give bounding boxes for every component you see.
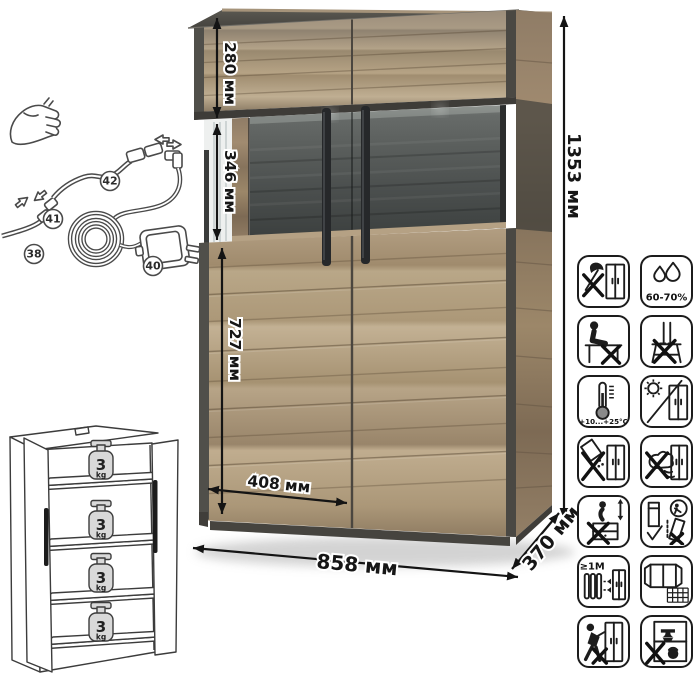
- cable-connector: [126, 143, 163, 163]
- care-icon-keep-1m-from-heat: ≥1M: [577, 555, 630, 608]
- cable-power-diagram: 42 41 38 40: [2, 98, 202, 276]
- elbow-plug: [165, 151, 182, 168]
- care-icon-no-overloading: [640, 615, 693, 668]
- care-icon-transport-upright: [640, 495, 693, 548]
- callout-40: 40: [144, 257, 163, 276]
- callout-41-number: 41: [45, 213, 60, 226]
- care-icon-temperature-range: +10...+25°C: [577, 375, 630, 428]
- callout-38-number: 38: [26, 248, 41, 261]
- callout-41: 41: [44, 210, 63, 229]
- weight-unit: kg: [96, 471, 106, 480]
- care-icon-no-sitting: [577, 315, 630, 368]
- dim-label-lower-section: 727 мм: [226, 318, 244, 381]
- shelf-weight-2: 3 kg: [89, 501, 113, 540]
- dim-label-top-section: 280 мм: [221, 42, 239, 105]
- callout-38: 38: [25, 245, 44, 264]
- care-icon-humidity-range: 60-70%: [640, 255, 693, 308]
- shelf-capacity-diagram: 3 kg 3 kg 3 kg 3 kg: [10, 426, 178, 672]
- care-icon-no-wet-cleaning: [640, 435, 693, 488]
- care-icon-ventilate-room: [640, 555, 693, 608]
- care-icon-no-pushing: [577, 615, 630, 668]
- product-spec-sheet: 42 41 38 40: [0, 0, 700, 678]
- dim-label-glass-section: 346 мм: [221, 150, 239, 213]
- weight-unit: kg: [96, 633, 106, 642]
- hand-icon: [10, 98, 60, 144]
- callout-42-number: 42: [102, 175, 117, 188]
- care-icon-no-standing: [640, 315, 693, 368]
- cable-coil: [70, 213, 122, 265]
- heat-distance-value: ≥1M: [580, 561, 605, 572]
- shelf-weight-4: 3 kg: [89, 603, 113, 642]
- temperature-value: +10...+25°C: [580, 417, 627, 425]
- callout-42: 42: [101, 172, 120, 191]
- care-icon-no-sharp-tools: [577, 255, 630, 308]
- weight-unit: kg: [96, 584, 106, 593]
- cabinet-render: [188, 10, 552, 546]
- care-icon-avoid-direct-sunlight: [640, 375, 693, 428]
- callout-40-number: 40: [145, 260, 161, 273]
- shelf-weight-3: 3 kg: [89, 554, 113, 593]
- care-icon-grid: 60-70%: [577, 255, 693, 668]
- dim-label-total-height: 1353 мм: [563, 133, 584, 219]
- weight-unit: kg: [96, 531, 106, 540]
- humidity-value: 60-70%: [646, 292, 688, 303]
- care-icon-no-jumping-on-furniture: [577, 495, 630, 548]
- care-icon-no-spilling-liquids: [577, 435, 630, 488]
- shelf-weight-1: 3 kg: [89, 441, 113, 480]
